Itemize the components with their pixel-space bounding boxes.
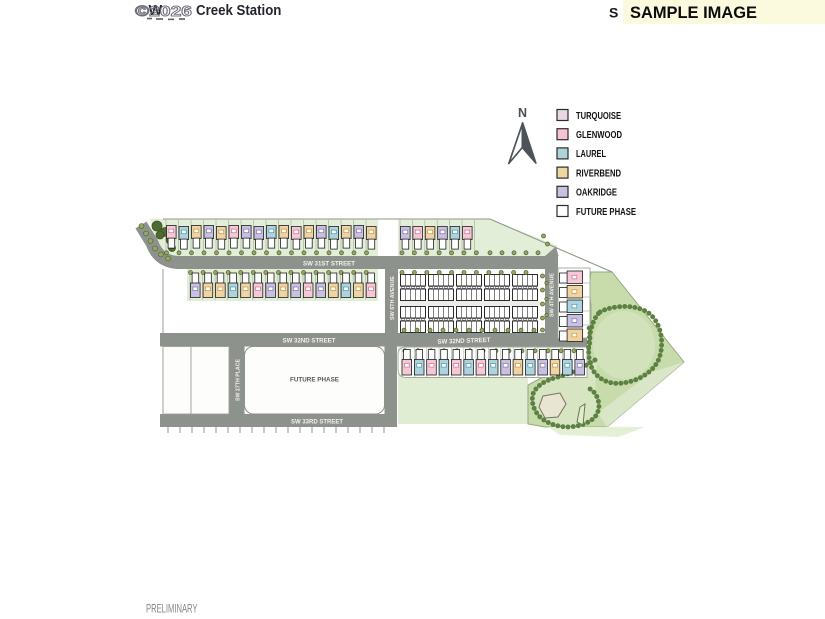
svg-text:SW 33RD STREET: SW 33RD STREET [291, 418, 343, 425]
svg-text:SW 4TH AVENUE: SW 4TH AVENUE [550, 273, 556, 317]
svg-text:RIVERBEND: RIVERBEND [576, 168, 621, 179]
svg-text:S: S [609, 5, 618, 21]
svg-text:LAUREL: LAUREL [576, 149, 606, 160]
svg-text:PRELIMINARY: PRELIMINARY [146, 604, 198, 616]
svg-text:Creek Station: Creek Station [196, 3, 281, 19]
svg-text:SW 27TH PLACE: SW 27TH PLACE [236, 359, 242, 401]
svg-text:SW 32ND STREET: SW 32ND STREET [283, 337, 336, 344]
svg-text:TURQUOISE: TURQUOISE [576, 111, 621, 122]
svg-text:N: N [518, 106, 527, 120]
svg-text:SW 31ST STREET: SW 31ST STREET [303, 260, 355, 267]
svg-text:GLENWOOD: GLENWOOD [576, 130, 622, 141]
svg-text:©2026: ©2026 [135, 4, 192, 20]
svg-text:OAKRIDGE: OAKRIDGE [576, 188, 617, 199]
svg-text:FUTURE PHASE: FUTURE PHASE [576, 207, 636, 218]
svg-text:SW 6TH AVENUE: SW 6TH AVENUE [390, 276, 396, 320]
svg-text:SAMPLE IMAGE: SAMPLE IMAGE [630, 3, 757, 22]
svg-text:FUTURE PHASE: FUTURE PHASE [290, 377, 340, 384]
